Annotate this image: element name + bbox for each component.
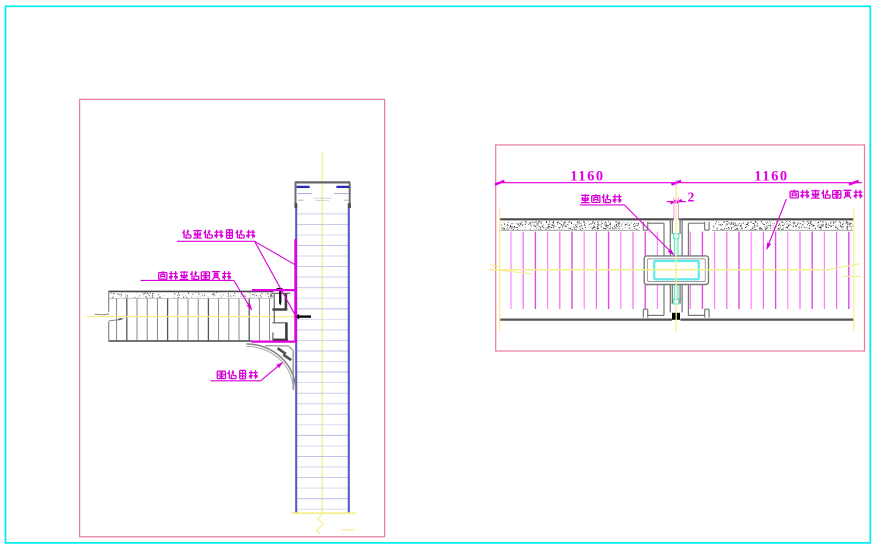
svg-text:1160: 1160 — [754, 168, 789, 184]
svg-text:2: 2 — [688, 189, 695, 204]
svg-text:1160: 1160 — [570, 168, 605, 184]
